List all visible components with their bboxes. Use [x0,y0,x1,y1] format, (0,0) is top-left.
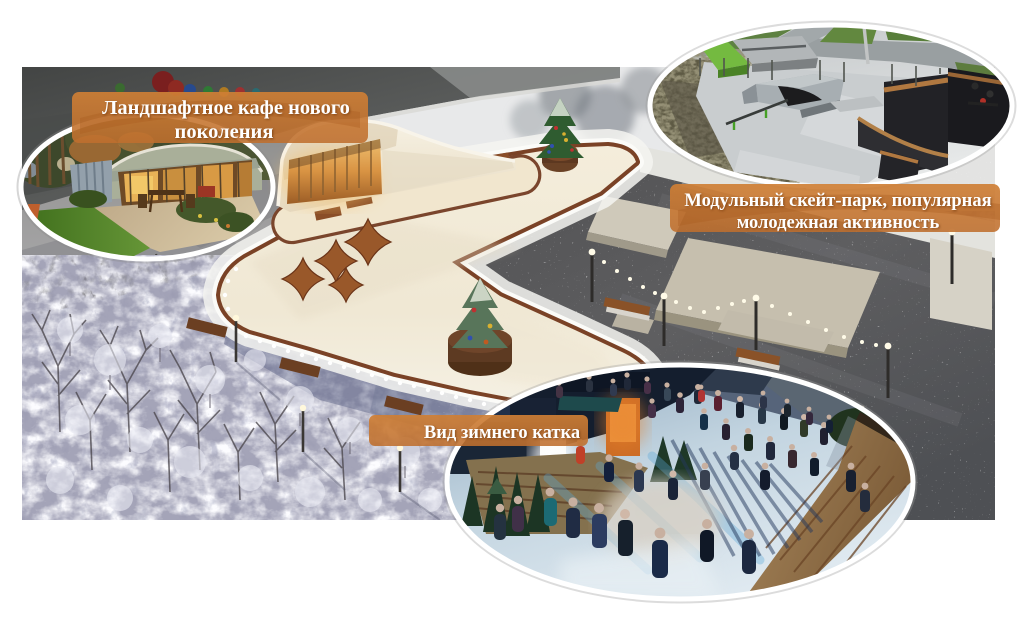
svg-text:поколения: поколения [175,121,274,143]
svg-text:молодежная активность: молодежная активность [737,213,940,233]
svg-text:Ландшафтное кафе нового: Ландшафтное кафе нового [102,97,350,119]
svg-text:Модульный скейт-парк, популярн: Модульный скейт-парк, популярная [684,191,991,211]
svg-text:Вид зимнего катка: Вид зимнего катка [424,423,580,443]
